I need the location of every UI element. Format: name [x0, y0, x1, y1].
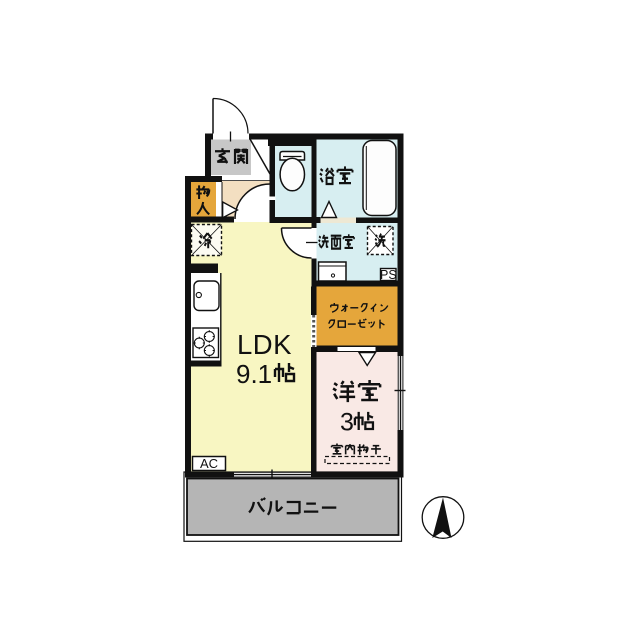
- svg-text:9.1: 9.1: [236, 359, 272, 389]
- svg-text:3: 3: [340, 409, 354, 437]
- svg-text:PS: PS: [380, 268, 397, 282]
- svg-text:LDK: LDK: [237, 329, 292, 360]
- svg-text:AC: AC: [200, 456, 218, 471]
